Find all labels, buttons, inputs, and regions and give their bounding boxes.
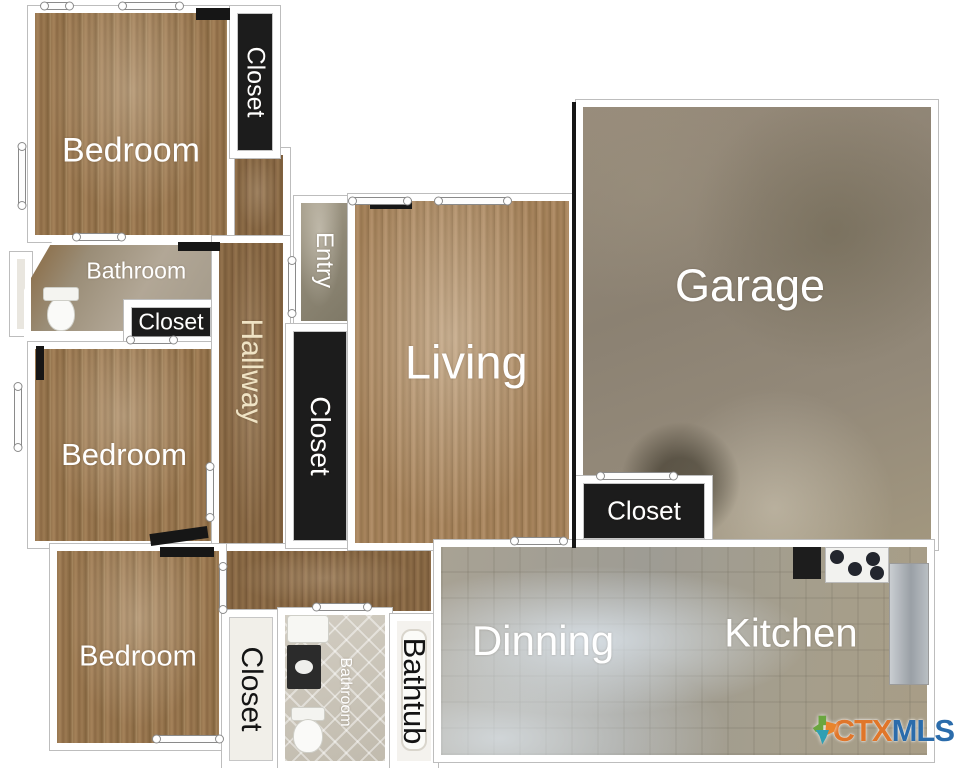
room-label: Closet — [234, 646, 268, 731]
room-label: Bathroom — [336, 658, 354, 727]
room-entry: Entry — [294, 196, 354, 328]
toilet-icon — [47, 297, 75, 331]
door-opening — [36, 346, 44, 380]
shower-floor — [17, 259, 25, 329]
window-icon — [316, 603, 368, 611]
room-closet-top: Closet — [230, 6, 280, 158]
burner-icon — [830, 550, 844, 564]
window-icon — [18, 146, 26, 206]
texas-state-icon — [808, 711, 839, 749]
toilet-icon — [293, 719, 323, 753]
room-closet-hall: Closet — [286, 324, 354, 548]
refrigerator-icon — [889, 563, 929, 685]
room-label: Dinning — [472, 617, 614, 665]
room-bedroom-top: Bedroom — [28, 6, 234, 242]
kitchen-island-icon — [793, 547, 821, 579]
wood-floor — [35, 13, 227, 235]
room-label: Bedroom — [61, 437, 187, 473]
window-icon — [76, 233, 122, 241]
stove-icon — [825, 547, 889, 583]
room-living: Living — [348, 194, 576, 550]
ctxmls-logo: CTXMLS — [808, 706, 954, 754]
counter-icon — [287, 615, 329, 643]
logo-text-mls: MLS — [892, 715, 954, 746]
room-closet-bottom: Closet — [222, 610, 280, 768]
wood-floor — [219, 551, 431, 611]
room-label: Hallway — [234, 318, 268, 423]
room-label: Closet — [607, 496, 681, 527]
room-bathroom-bottom: Bathroom — [278, 608, 392, 768]
door-opening — [178, 242, 220, 251]
burner-icon — [848, 562, 862, 576]
room-label: Bedroom — [62, 131, 200, 170]
room-hallway: Hallway — [212, 236, 290, 562]
room-label: Closet — [138, 309, 203, 336]
sink-bowl-icon — [295, 660, 313, 674]
window-icon — [122, 2, 180, 10]
logo-text-ctx: CTX — [833, 715, 892, 746]
window-icon — [14, 386, 22, 448]
toilet-tank-icon — [43, 287, 79, 301]
window-icon — [206, 466, 214, 518]
room-label: Entry — [310, 232, 338, 288]
burner-icon — [866, 552, 880, 566]
window-icon — [288, 260, 296, 314]
room-closet-garage: Closet — [576, 476, 712, 546]
room-label: Closet — [304, 396, 336, 475]
window-icon — [156, 735, 220, 743]
window-icon — [438, 197, 508, 205]
window-icon — [130, 336, 174, 344]
window-icon — [44, 2, 70, 10]
room-bedroom-top-nook — [226, 148, 290, 244]
room-label: Bathroom — [86, 257, 186, 284]
room-bedroom-middle: Bedroom — [28, 342, 220, 548]
room-label: Bathtub — [396, 638, 432, 745]
burner-icon — [870, 566, 884, 580]
room-label: Kitchen — [724, 612, 857, 657]
floor-plan: Bedroom Closet Bathroom Closet Bedroom H… — [0, 0, 960, 768]
room-label: Garage — [675, 260, 825, 312]
wood-floor — [233, 155, 283, 237]
room-bathtub: Bathtub — [390, 614, 438, 768]
window-icon — [600, 472, 674, 480]
garage-wall-seam — [572, 102, 576, 548]
door-opening — [160, 547, 214, 557]
room-label: Living — [405, 334, 528, 389]
room-label: Closet — [241, 47, 270, 118]
room-bedroom-bottom: Bedroom — [50, 544, 226, 750]
room-label: Bedroom — [79, 640, 197, 673]
window-icon — [352, 197, 408, 205]
window-icon — [514, 537, 564, 545]
door-opening — [196, 8, 230, 20]
window-icon — [219, 566, 227, 610]
vanity-icon — [287, 645, 321, 689]
